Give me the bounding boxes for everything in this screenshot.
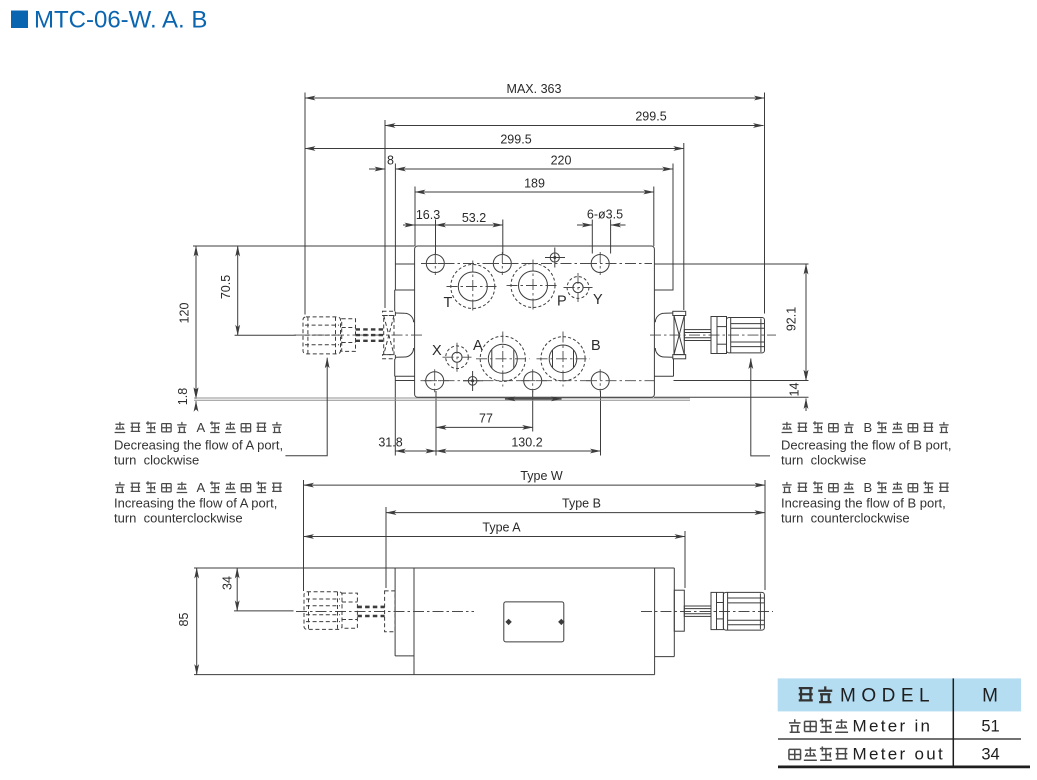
- svg-text:A: A: [197, 420, 206, 435]
- svg-text:B: B: [864, 480, 873, 495]
- svg-text:Meter out: Meter out: [853, 745, 946, 764]
- svg-text:T: T: [444, 295, 453, 311]
- svg-text:92.1: 92.1: [785, 307, 799, 331]
- svg-text:MTC-06-W. A. B: MTC-06-W. A. B: [34, 7, 207, 34]
- svg-text:51: 51: [981, 718, 999, 736]
- svg-text:A: A: [197, 480, 206, 495]
- svg-text:77: 77: [479, 412, 493, 426]
- svg-text:Y: Y: [593, 292, 603, 308]
- svg-text:M: M: [982, 686, 998, 707]
- svg-text:Type A: Type A: [482, 521, 521, 535]
- svg-text:14: 14: [788, 383, 802, 397]
- svg-text:B: B: [591, 338, 601, 354]
- svg-text:8: 8: [387, 154, 394, 168]
- svg-text:299.5: 299.5: [635, 110, 666, 124]
- svg-text:1.8: 1.8: [176, 388, 190, 405]
- svg-text:Decreasing the flow of A port,: Decreasing the flow of A port,: [114, 437, 283, 452]
- svg-text:85: 85: [177, 613, 191, 627]
- svg-text:A: A: [473, 338, 483, 354]
- svg-text:turn clockwise: turn clockwise: [114, 452, 199, 467]
- svg-text:189: 189: [524, 177, 545, 191]
- svg-text:16.3: 16.3: [416, 208, 440, 222]
- svg-text:Meter in: Meter in: [853, 717, 933, 736]
- svg-text:MAX. 363: MAX. 363: [507, 82, 562, 96]
- svg-text:turn clockwise: turn clockwise: [781, 452, 866, 467]
- svg-text:31.8: 31.8: [378, 436, 402, 450]
- svg-text:MODEL: MODEL: [840, 686, 935, 707]
- svg-text:turn counterclockwise: turn counterclockwise: [114, 511, 243, 526]
- svg-text:34: 34: [981, 746, 999, 764]
- svg-text:B: B: [864, 420, 873, 435]
- svg-text:Type B: Type B: [562, 497, 601, 511]
- svg-text:turn counterclockwise: turn counterclockwise: [781, 511, 910, 526]
- svg-text:130.2: 130.2: [511, 436, 542, 450]
- svg-text:299.5: 299.5: [500, 133, 531, 147]
- svg-text:X: X: [432, 343, 442, 359]
- svg-text:Increasing the flow of A port,: Increasing the flow of A port,: [114, 496, 277, 511]
- svg-text:220: 220: [551, 154, 572, 168]
- svg-text:P: P: [557, 294, 567, 310]
- svg-text:70.5: 70.5: [219, 275, 233, 299]
- svg-text:Type W: Type W: [520, 469, 563, 483]
- svg-text:34: 34: [221, 576, 235, 590]
- svg-text:120: 120: [178, 303, 192, 324]
- svg-text:Decreasing the flow of B port,: Decreasing the flow of B port,: [781, 437, 952, 452]
- svg-text:6-ø3.5: 6-ø3.5: [587, 208, 623, 222]
- svg-text:Increasing the flow of B port,: Increasing the flow of B port,: [781, 496, 946, 511]
- svg-text:53.2: 53.2: [462, 211, 486, 225]
